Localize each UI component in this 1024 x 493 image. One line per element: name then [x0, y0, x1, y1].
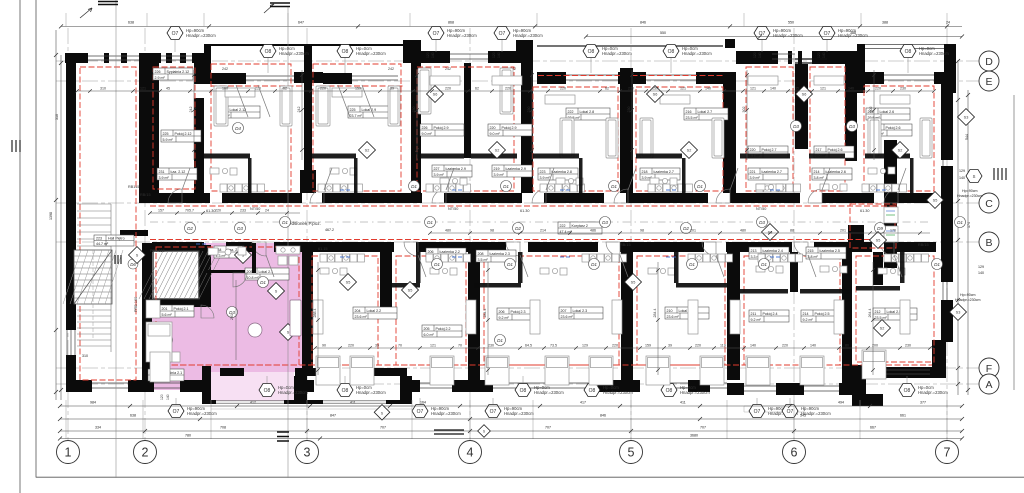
svg-text:119: 119	[720, 344, 726, 348]
svg-text:Lokal 2.12: Lokal 2.12	[230, 108, 247, 112]
svg-text:121: 121	[820, 87, 826, 91]
svg-text:1398: 1398	[49, 212, 53, 220]
svg-text:10.8 m²: 10.8 m²	[247, 276, 260, 280]
svg-text:120: 120	[753, 52, 757, 58]
svg-text:S2: S2	[898, 149, 903, 153]
svg-text:Łazienka 2.7: Łazienka 2.7	[762, 170, 782, 174]
svg-text:140: 140	[705, 87, 711, 91]
svg-text:Łazienka 2.5: Łazienka 2.5	[820, 249, 840, 253]
svg-text:61.30: 61.30	[206, 209, 216, 213]
svg-text:9.2 m²: 9.2 m²	[499, 316, 510, 320]
svg-text:Lokal 2.5: Lokal 2.5	[887, 310, 902, 314]
svg-text:140: 140	[770, 87, 776, 91]
svg-text:O7: O7	[433, 31, 440, 37]
svg-text:S5: S5	[346, 281, 351, 285]
svg-text:291: 291	[230, 314, 234, 320]
svg-text:264.4: 264.4	[868, 309, 872, 318]
svg-text:214: 214	[540, 229, 546, 233]
svg-text:707: 707	[380, 426, 386, 430]
svg-text:242: 242	[222, 67, 228, 71]
svg-text:5: 5	[628, 446, 635, 460]
svg-text:39: 39	[668, 344, 672, 348]
svg-text:RB/15: RB/15	[620, 243, 631, 247]
svg-text:O7: O7	[417, 409, 424, 415]
svg-text:707: 707	[700, 426, 706, 430]
svg-text:207: 207	[561, 309, 567, 313]
svg-text:220: 220	[348, 344, 354, 348]
svg-text:707: 707	[545, 426, 551, 430]
svg-text:Lokal 2.3: Lokal 2.3	[573, 309, 588, 313]
svg-text:220: 220	[445, 87, 451, 91]
svg-text:23.6 m²: 23.6 m²	[355, 315, 368, 319]
svg-text:Hnadpr.=230cm: Hnadpr.=230cm	[919, 51, 949, 56]
svg-text:Hnadpr.=230cm: Hnadpr.=230cm	[447, 33, 477, 38]
svg-text:242: 242	[445, 67, 451, 71]
svg-text:412: 412	[250, 401, 256, 405]
svg-text:220: 220	[875, 87, 881, 91]
svg-text:120: 120	[492, 52, 496, 58]
svg-text:O7: O7	[499, 31, 506, 37]
svg-text:230: 230	[900, 87, 906, 91]
svg-text:638: 638	[128, 21, 134, 25]
svg-text:O8: O8	[589, 388, 596, 394]
svg-text:70: 70	[398, 344, 402, 348]
svg-text:544: 544	[965, 134, 969, 140]
svg-text:220: 220	[612, 344, 618, 348]
svg-text:159: 159	[355, 87, 361, 91]
svg-text:Pokój 2.4: Pokój 2.4	[763, 312, 778, 316]
svg-text:PRB 160: PRB 160	[134, 297, 138, 312]
svg-text:215: 215	[808, 249, 814, 253]
svg-text:220: 220	[628, 87, 634, 91]
svg-text:233: 233	[240, 209, 246, 213]
svg-text:780: 780	[185, 434, 191, 438]
svg-text:NT/50: NT/50	[756, 207, 766, 211]
svg-text:23.6 m²: 23.6 m²	[667, 315, 680, 319]
svg-text:159: 159	[652, 87, 658, 91]
svg-text:Hnadpr.=230cm: Hnadpr.=230cm	[513, 33, 543, 38]
svg-text:D1: D1	[503, 184, 509, 189]
svg-text:Lokal 2.1: Lokal 2.1	[259, 270, 274, 274]
svg-text:D1: D1	[497, 338, 503, 343]
svg-text:480: 480	[740, 229, 746, 233]
svg-text:S: S	[136, 254, 139, 258]
svg-text:Hnadpr.=230cm: Hnadpr.=230cm	[356, 51, 386, 56]
svg-text:140: 140	[822, 52, 826, 58]
svg-text:D1: D1	[957, 220, 963, 225]
svg-text:302: 302	[869, 107, 873, 113]
svg-text:NT/50: NT/50	[250, 207, 260, 211]
svg-text:218: 218	[642, 170, 648, 174]
svg-text:S6: S6	[653, 93, 658, 97]
svg-text:4: 4	[467, 446, 474, 460]
svg-text:D1: D1	[427, 220, 433, 225]
svg-text:Pokój 2.9: Pokój 2.9	[502, 126, 517, 130]
svg-text:D3: D3	[602, 220, 608, 225]
svg-text:3.9 m²: 3.9 m²	[750, 176, 761, 180]
svg-text:120: 120	[160, 394, 164, 400]
svg-text:D1: D1	[434, 262, 440, 267]
svg-text:206: 206	[428, 250, 434, 254]
svg-text:225: 225	[163, 132, 169, 136]
svg-text:Łaz. 2.12: Łaz. 2.12	[171, 170, 186, 174]
svg-text:Pokój 2.6: Pokój 2.6	[886, 126, 901, 130]
svg-text:O8: O8	[588, 49, 595, 55]
svg-text:214: 214	[803, 312, 809, 316]
svg-text:61.15: 61.15	[318, 247, 328, 251]
svg-text:23.7 m²: 23.7 m²	[350, 114, 363, 118]
svg-text:216: 216	[686, 110, 692, 114]
svg-text:220: 220	[505, 87, 511, 91]
svg-text:D9: D9	[877, 226, 883, 231]
svg-text:S3: S3	[964, 116, 969, 120]
svg-text:S6: S6	[433, 93, 438, 97]
svg-text:D3: D3	[237, 226, 243, 231]
svg-text:7: 7	[944, 446, 951, 460]
svg-text:204: 204	[355, 309, 361, 313]
svg-text:550: 550	[788, 21, 794, 25]
svg-text:S2: S2	[495, 149, 500, 153]
svg-text:23.5 m²: 23.5 m²	[686, 116, 699, 120]
svg-text:220: 220	[215, 209, 221, 213]
svg-text:3.5 m²: 3.5 m²	[478, 258, 489, 262]
svg-text:220: 220	[782, 344, 788, 348]
svg-text:S5: S5	[408, 289, 413, 293]
svg-text:3: 3	[304, 446, 311, 460]
svg-text:61.30: 61.30	[860, 209, 870, 213]
svg-text:Hall Piętro: Hall Piętro	[108, 237, 125, 241]
svg-text:157: 157	[158, 209, 164, 213]
svg-text:868: 868	[448, 21, 454, 25]
svg-text:176: 176	[890, 229, 896, 233]
svg-text:242: 242	[388, 67, 394, 71]
svg-text:220: 220	[560, 87, 566, 91]
svg-text:Hnadpr.=230cm: Hnadpr.=230cm	[278, 390, 308, 395]
svg-text:159: 159	[645, 344, 651, 348]
svg-text:121: 121	[430, 344, 436, 348]
svg-text:D2: D2	[187, 226, 193, 231]
svg-text:F: F	[986, 363, 992, 375]
svg-text:220: 220	[750, 148, 756, 152]
svg-text:O7: O7	[759, 31, 766, 37]
svg-text:45: 45	[166, 87, 170, 91]
svg-text:214: 214	[814, 170, 820, 174]
svg-text:O8: O8	[904, 388, 911, 394]
svg-text:201: 201	[162, 307, 168, 311]
svg-text:RB/15: RB/15	[918, 243, 929, 247]
svg-text:64.5: 64.5	[525, 344, 532, 348]
svg-text:480: 480	[445, 229, 451, 233]
svg-text:D2: D2	[515, 226, 521, 231]
svg-text:S: S	[973, 174, 976, 179]
svg-text:RB/15: RB/15	[140, 193, 151, 197]
svg-text:120: 120	[426, 52, 430, 58]
svg-text:D3: D3	[793, 124, 799, 129]
svg-text:Łazienka 2.2: Łazienka 2.2	[440, 250, 460, 254]
svg-text:242: 242	[297, 107, 301, 113]
svg-text:9.2 m²: 9.2 m²	[751, 318, 762, 322]
svg-text:705.7: 705.7	[185, 209, 194, 213]
svg-text:Hnadpr.=230cm: Hnadpr.=230cm	[773, 33, 803, 38]
svg-text:S3: S3	[956, 311, 961, 315]
svg-text:D4: D4	[235, 126, 241, 131]
svg-text:Pokój 2.1: Pokój 2.1	[174, 307, 189, 311]
svg-text:206: 206	[499, 310, 505, 314]
svg-text:205: 205	[247, 270, 253, 274]
svg-text:Łazienka 2.3: Łazienka 2.3	[490, 252, 510, 256]
svg-text:Hnadpr.=230cm: Hnadpr.=230cm	[356, 390, 386, 395]
svg-text:638: 638	[130, 414, 136, 418]
svg-text:3.9 m²: 3.9 m²	[434, 173, 445, 177]
svg-text:230: 230	[527, 107, 531, 113]
svg-text:205: 205	[424, 327, 430, 331]
svg-text:220: 220	[695, 344, 701, 348]
svg-text:O8: O8	[520, 388, 527, 394]
svg-text:88: 88	[790, 229, 794, 233]
svg-text:129: 129	[959, 169, 965, 173]
svg-text:A: A	[985, 379, 992, 391]
svg-text:Hnadpr.=230cm: Hnadpr.=230cm	[682, 51, 712, 56]
svg-text:984: 984	[90, 401, 96, 405]
svg-text:80: 80	[845, 344, 849, 348]
svg-text:Łazienka 2.9: Łazienka 2.9	[446, 167, 466, 171]
svg-text:Hnadpr.=230cm: Hnadpr.=230cm	[918, 390, 948, 395]
svg-text:140: 140	[166, 394, 170, 400]
svg-text:Hnadpr.=230cm: Hnadpr.=230cm	[602, 51, 632, 56]
svg-text:140: 140	[959, 176, 965, 180]
svg-text:O7: O7	[787, 409, 794, 415]
svg-text:160: 160	[222, 87, 228, 91]
svg-text:1: 1	[65, 446, 72, 460]
svg-text:Lokal 2.7: Lokal 2.7	[698, 110, 713, 114]
svg-text:211: 211	[751, 312, 757, 316]
svg-text:174: 174	[967, 222, 971, 228]
svg-text:Pokój 2.5: Pokój 2.5	[815, 312, 830, 316]
svg-text:O8: O8	[905, 49, 912, 55]
svg-text:129: 129	[582, 344, 588, 348]
svg-text:S5: S5	[876, 239, 881, 243]
svg-text:Hnadpr.=230cm: Hnadpr.=230cm	[680, 390, 710, 395]
svg-text:647: 647	[298, 21, 304, 25]
svg-text:284.4: 284.4	[653, 309, 657, 318]
svg-text:550: 550	[660, 31, 666, 35]
svg-text:3.8 m²: 3.8 m²	[814, 176, 825, 180]
svg-text:D1: D1	[260, 280, 266, 285]
svg-text:D1: D1	[611, 184, 617, 189]
svg-text:5.9 m²: 5.9 m²	[163, 138, 174, 142]
svg-text:O7: O7	[824, 31, 831, 37]
svg-text:70: 70	[458, 344, 462, 348]
svg-text:D1: D1	[697, 184, 703, 189]
svg-text:D6: D6	[130, 262, 136, 267]
svg-text:230: 230	[627, 107, 631, 113]
svg-text:Hnadpr.=230cm: Hnadpr.=230cm	[603, 390, 633, 395]
svg-text:212: 212	[875, 310, 881, 314]
svg-text:310: 310	[100, 87, 106, 91]
svg-text:284.4: 284.4	[483, 309, 487, 318]
svg-text:98: 98	[490, 229, 494, 233]
svg-text:Hnadpr.=230cm: Hnadpr.=230cm	[957, 194, 982, 198]
svg-text:9.2 m²: 9.2 m²	[803, 318, 814, 322]
svg-text:Hp=90cm: Hp=90cm	[962, 189, 977, 193]
svg-text:73.5: 73.5	[550, 344, 557, 348]
svg-text:377: 377	[920, 401, 926, 405]
svg-text:302: 302	[742, 107, 746, 113]
svg-text:140: 140	[750, 344, 756, 348]
svg-text:310: 310	[82, 354, 88, 358]
svg-text:388: 388	[882, 21, 888, 25]
svg-text:D1: D1	[411, 184, 417, 189]
svg-text:231: 231	[159, 170, 165, 174]
svg-text:RB115: RB115	[128, 185, 139, 189]
svg-text:23.5 m²: 23.5 m²	[875, 316, 888, 320]
svg-text:230: 230	[488, 344, 494, 348]
svg-text:24: 24	[265, 209, 269, 213]
svg-text:661: 661	[900, 414, 906, 418]
svg-text:226: 226	[155, 70, 161, 74]
svg-text:Pokój 2.9: Pokój 2.9	[434, 126, 449, 130]
svg-text:494: 494	[838, 401, 844, 405]
svg-text:3.9 m²: 3.9 m²	[540, 176, 551, 180]
svg-text:230: 230	[412, 107, 416, 113]
svg-text:288.4: 288.4	[313, 309, 317, 318]
svg-text:411: 411	[680, 401, 686, 405]
svg-text:Lokal 2.6: Lokal 2.6	[880, 110, 895, 114]
svg-text:Hnadpr.=230cm: Hnadpr.=230cm	[187, 411, 217, 416]
svg-text:98: 98	[640, 229, 644, 233]
svg-text:O8: O8	[666, 388, 673, 394]
svg-text:B: B	[985, 237, 992, 249]
svg-text:2: 2	[142, 446, 149, 460]
svg-text:D1: D1	[282, 220, 288, 225]
svg-text:D3: D3	[759, 220, 765, 225]
svg-text:225: 225	[350, 108, 356, 112]
svg-text:39: 39	[390, 87, 394, 91]
svg-text:Hnadpr.=230cm: Hnadpr.=230cm	[279, 51, 309, 56]
svg-text:227: 227	[434, 167, 440, 171]
svg-text:121: 121	[750, 87, 756, 91]
svg-text:222: 222	[568, 110, 574, 114]
svg-text:140: 140	[810, 344, 816, 348]
svg-text:121: 121	[680, 87, 686, 91]
svg-text:Hp=90cm: Hp=90cm	[960, 293, 975, 297]
svg-text:230: 230	[905, 344, 911, 348]
svg-text:210: 210	[667, 309, 673, 313]
svg-text:120: 120	[817, 52, 821, 58]
svg-text:NT/50: NT/50	[448, 207, 458, 211]
svg-text:411: 411	[350, 401, 356, 405]
svg-text:O7: O7	[173, 409, 180, 415]
svg-text:61.30: 61.30	[520, 209, 530, 213]
svg-text:6: 6	[791, 446, 798, 460]
svg-text:Pokój 2.3: Pokój 2.3	[511, 310, 526, 314]
svg-text:D: D	[985, 56, 993, 68]
svg-text:Korytarz 2: Korytarz 2	[572, 224, 588, 228]
svg-text:23.6 m²: 23.6 m²	[561, 315, 574, 319]
svg-text:O8: O8	[668, 49, 675, 55]
svg-text:Lokal 2.8: Lokal 2.8	[580, 110, 595, 114]
svg-text:S: S	[287, 331, 290, 335]
svg-text:667: 667	[870, 426, 876, 430]
svg-text:217: 217	[816, 148, 822, 152]
svg-text:9.0 m²: 9.0 m²	[490, 132, 501, 136]
svg-text:O8: O8	[342, 388, 349, 394]
svg-text:213: 213	[751, 249, 757, 253]
svg-text:62: 62	[475, 87, 479, 91]
svg-text:708: 708	[220, 426, 226, 430]
svg-text:417: 417	[580, 401, 586, 405]
svg-text:O8: O8	[264, 388, 271, 394]
svg-text:140: 140	[758, 52, 762, 58]
svg-text:221: 221	[750, 170, 756, 174]
svg-text:3.9 m²: 3.9 m²	[494, 173, 505, 177]
svg-text:3680: 3680	[690, 434, 698, 438]
svg-text:5.6 m²: 5.6 m²	[162, 313, 173, 317]
svg-text:E: E	[985, 76, 992, 88]
svg-text:D1: D1	[761, 262, 767, 267]
svg-text:140: 140	[848, 87, 854, 91]
svg-text:24: 24	[946, 21, 950, 25]
svg-text:129: 129	[978, 265, 984, 269]
svg-text:D1: D1	[507, 262, 513, 267]
svg-text:201: 201	[690, 229, 696, 233]
svg-text:486: 486	[590, 229, 596, 233]
svg-text:3.9 m²: 3.9 m²	[159, 176, 170, 180]
svg-text:Pokój 2.2: Pokój 2.2	[436, 327, 451, 331]
svg-text:223: 223	[540, 170, 546, 174]
svg-text:334: 334	[95, 426, 101, 430]
svg-text:164: 164	[420, 401, 426, 405]
svg-text:Sypialnia 2.12: Sypialnia 2.12	[167, 70, 190, 74]
svg-text:6.0 m²: 6.0 m²	[424, 333, 435, 337]
svg-text:S2: S2	[687, 149, 692, 153]
svg-text:Pokój 2.12: Pokój 2.12	[175, 132, 192, 136]
svg-text:D1: D1	[591, 262, 597, 267]
svg-text:Łazienka 2.7: Łazienka 2.7	[654, 170, 674, 174]
svg-text:388: 388	[850, 31, 856, 35]
svg-text:35: 35	[795, 87, 799, 91]
svg-text:Łazienka 2.8: Łazienka 2.8	[552, 170, 572, 174]
svg-text:S: S	[275, 290, 278, 294]
svg-text:D1: D1	[934, 262, 940, 267]
svg-text:220: 220	[490, 126, 496, 130]
svg-text:Hnadpr.=230cm: Hnadpr.=230cm	[955, 298, 980, 302]
svg-text:O7: O7	[490, 409, 497, 415]
svg-text:Hnadpr.=230cm: Hnadpr.=230cm	[431, 411, 461, 416]
svg-text:S5: S5	[631, 281, 636, 285]
svg-text:S6: S6	[802, 93, 807, 97]
svg-text:S2: S2	[880, 327, 885, 331]
svg-text:219: 219	[494, 167, 500, 171]
svg-text:847: 847	[330, 414, 336, 418]
svg-text:467.2: 467.2	[325, 228, 334, 232]
svg-text:310: 310	[55, 114, 59, 120]
svg-text:C: C	[985, 198, 993, 210]
svg-text:140: 140	[431, 52, 435, 58]
svg-text:545: 545	[800, 414, 806, 418]
svg-text:Lokal 2.2: Lokal 2.2	[367, 309, 382, 313]
svg-text:140: 140	[497, 52, 501, 58]
svg-text:201: 201	[840, 229, 846, 233]
svg-text:D2: D2	[683, 226, 689, 231]
svg-text:Hnadpr.=230cm: Hnadpr.=230cm	[186, 33, 216, 38]
svg-text:O7: O7	[172, 31, 179, 37]
svg-text:846: 846	[600, 414, 606, 418]
svg-text:121: 121	[140, 87, 146, 91]
svg-text:O8: O8	[342, 49, 349, 55]
svg-text:D1: D1	[689, 262, 695, 267]
svg-text:D3: D3	[849, 124, 855, 129]
